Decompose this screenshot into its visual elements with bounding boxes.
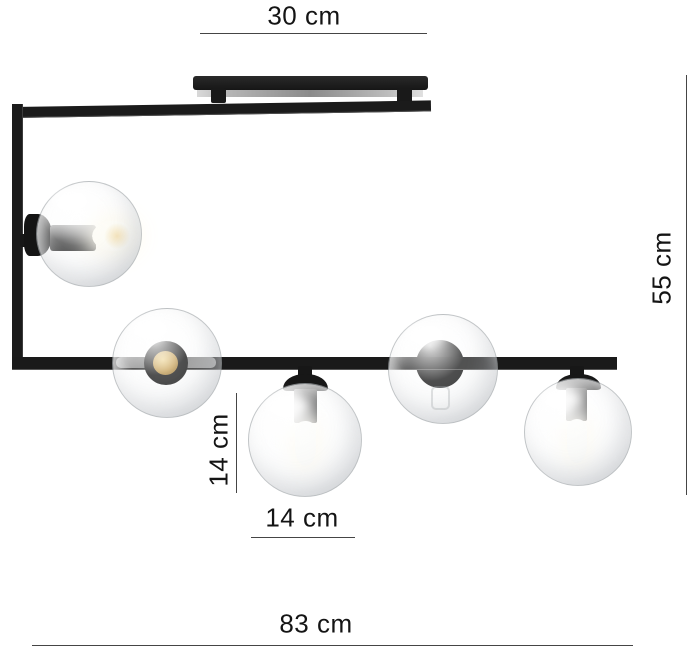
dimension-line-globe-height — [236, 393, 237, 493]
globe1-glass-highlight — [52, 190, 90, 212]
frame-horizontal-arm — [12, 357, 617, 370]
canopy-clip-left — [211, 88, 226, 103]
dimension-label-fixture-height: 55 cm — [647, 231, 678, 304]
dimension-label-globe-width: 14 cm — [265, 503, 338, 534]
dimension-label-canopy-width: 30 cm — [267, 1, 340, 32]
globe5-glass-highlight — [541, 388, 581, 410]
ceiling-canopy-bar — [193, 76, 428, 90]
frame-top-bar — [13, 100, 431, 118]
globe3-glass-highlight — [266, 394, 308, 418]
dimension-label-fixture-width: 83 cm — [279, 609, 352, 640]
globe2-glass-highlight — [130, 318, 170, 340]
dimension-line-canopy-width — [200, 33, 427, 34]
product-image-ceiling-lamp: 30 cm 55 cm 14 cm 14 cm 83 cm — [0, 0, 700, 658]
ceiling-canopy-plate — [197, 90, 423, 97]
dimension-label-globe-height: 14 cm — [204, 413, 235, 486]
globe4-glass-highlight — [406, 324, 446, 346]
dimension-line-fixture-height — [686, 75, 687, 495]
dimension-line-globe-width — [251, 537, 355, 538]
dimension-line-fixture-width — [32, 645, 633, 646]
